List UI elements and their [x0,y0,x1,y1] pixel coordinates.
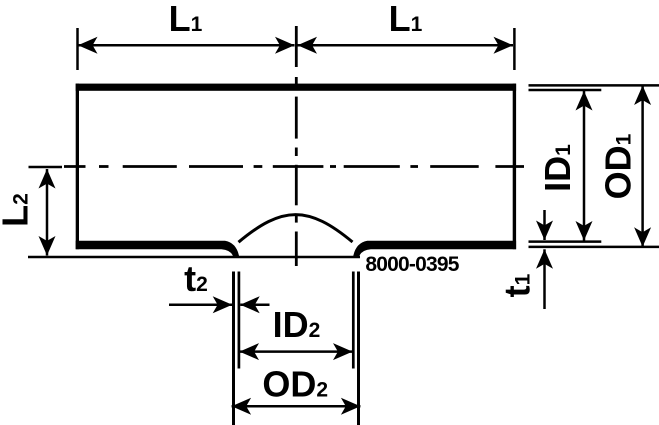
svg-text:8000-0395: 8000-0395 [365,253,459,276]
